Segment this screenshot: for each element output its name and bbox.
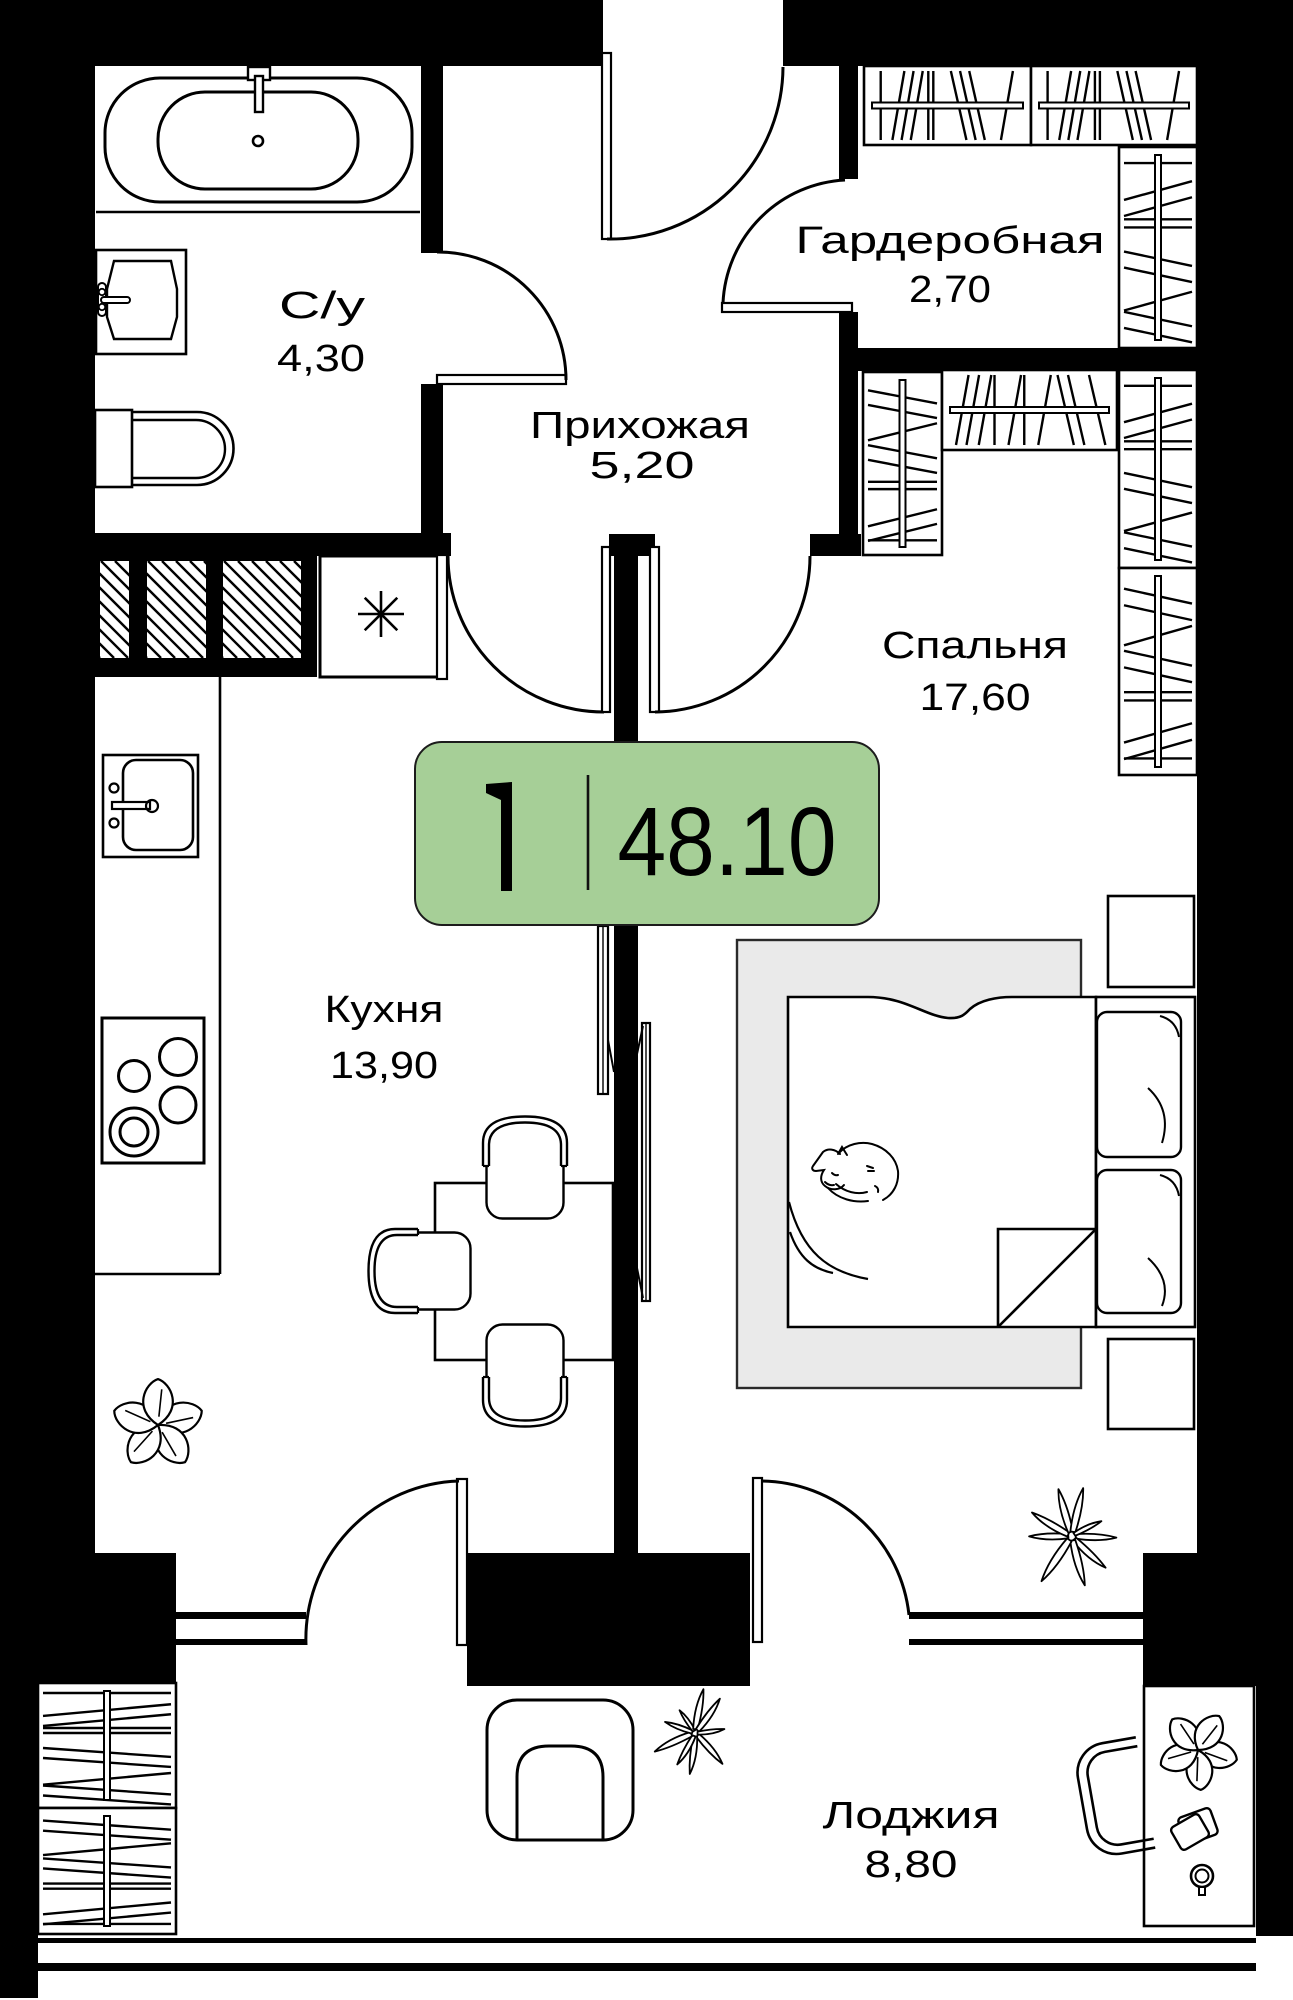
svg-text:8,80: 8,80 [865,1844,958,1886]
svg-text:Гардеробная: Гардеробная [796,220,1105,262]
svg-text:17,60: 17,60 [920,677,1031,719]
svg-text:48.10: 48.10 [618,787,837,896]
svg-text:Кухня: Кухня [325,989,444,1031]
svg-text:5,20: 5,20 [590,445,695,487]
svg-text:2,70: 2,70 [909,269,991,311]
svg-text:С/у: С/у [279,285,365,327]
svg-text:Спальня: Спальня [882,625,1068,667]
svg-text:4,30: 4,30 [277,338,365,380]
svg-text:Прихожая: Прихожая [530,405,750,447]
svg-text:Лоджия: Лоджия [823,1795,1000,1837]
svg-text:13,90: 13,90 [330,1045,438,1087]
